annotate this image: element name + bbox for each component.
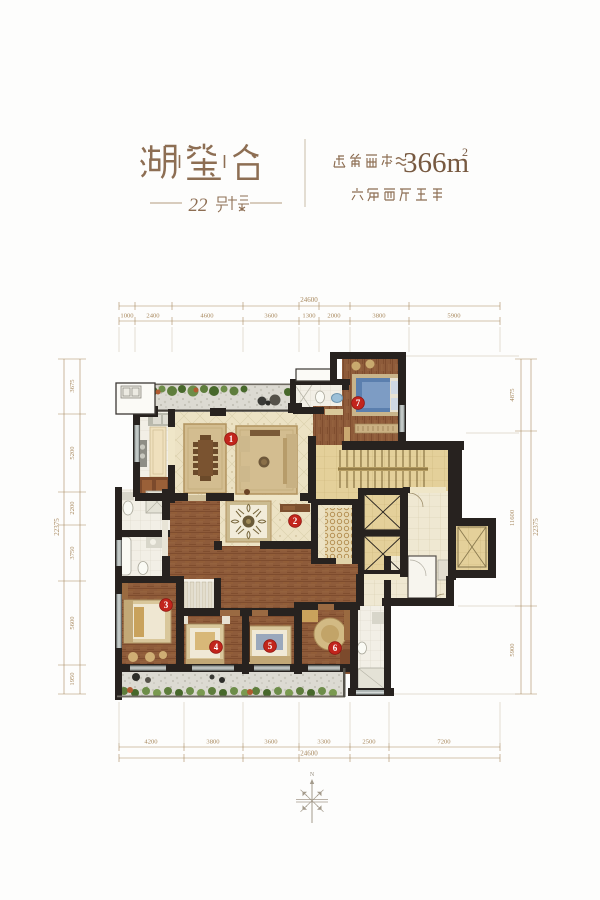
svg-text:22375: 22375 xyxy=(532,518,540,536)
svg-text:4: 4 xyxy=(214,642,219,652)
svg-text:5900: 5900 xyxy=(447,313,461,320)
svg-text:3750: 3750 xyxy=(69,546,76,560)
svg-text:1950: 1950 xyxy=(69,672,76,686)
svg-text:3600: 3600 xyxy=(264,739,278,746)
svg-text:4200: 4200 xyxy=(144,739,158,746)
svg-text:3300: 3300 xyxy=(317,739,331,746)
svg-text:2000: 2000 xyxy=(327,313,341,320)
svg-text:366m: 366m xyxy=(403,147,470,179)
svg-text:3800: 3800 xyxy=(372,313,386,320)
svg-text:7: 7 xyxy=(356,398,361,408)
svg-text:3675: 3675 xyxy=(69,379,76,393)
svg-text:1300: 1300 xyxy=(302,313,316,320)
svg-text:7200: 7200 xyxy=(437,739,451,746)
svg-text:4875: 4875 xyxy=(509,388,516,402)
svg-text:2500: 2500 xyxy=(362,739,376,746)
svg-text:N: N xyxy=(310,772,315,778)
svg-text:6: 6 xyxy=(333,643,338,653)
svg-text:3800: 3800 xyxy=(206,739,220,746)
svg-text:1000: 1000 xyxy=(120,313,134,320)
svg-text:2400: 2400 xyxy=(146,313,160,320)
svg-text:24600: 24600 xyxy=(300,296,318,304)
svg-text:2: 2 xyxy=(462,145,468,159)
svg-text:2200: 2200 xyxy=(69,501,76,515)
svg-text:5900: 5900 xyxy=(509,643,516,657)
svg-text:1: 1 xyxy=(229,434,234,444)
svg-text:5200: 5200 xyxy=(69,446,76,460)
svg-text:5600: 5600 xyxy=(69,616,76,630)
svg-text:3600: 3600 xyxy=(264,313,278,320)
svg-text:11600: 11600 xyxy=(509,509,516,526)
svg-text:4600: 4600 xyxy=(200,313,214,320)
svg-text:2: 2 xyxy=(293,516,298,526)
svg-text:24600: 24600 xyxy=(300,750,318,758)
svg-text:22375: 22375 xyxy=(53,518,61,536)
svg-text:5: 5 xyxy=(268,641,273,651)
svg-text:22: 22 xyxy=(189,195,209,216)
svg-text:3: 3 xyxy=(164,600,169,610)
